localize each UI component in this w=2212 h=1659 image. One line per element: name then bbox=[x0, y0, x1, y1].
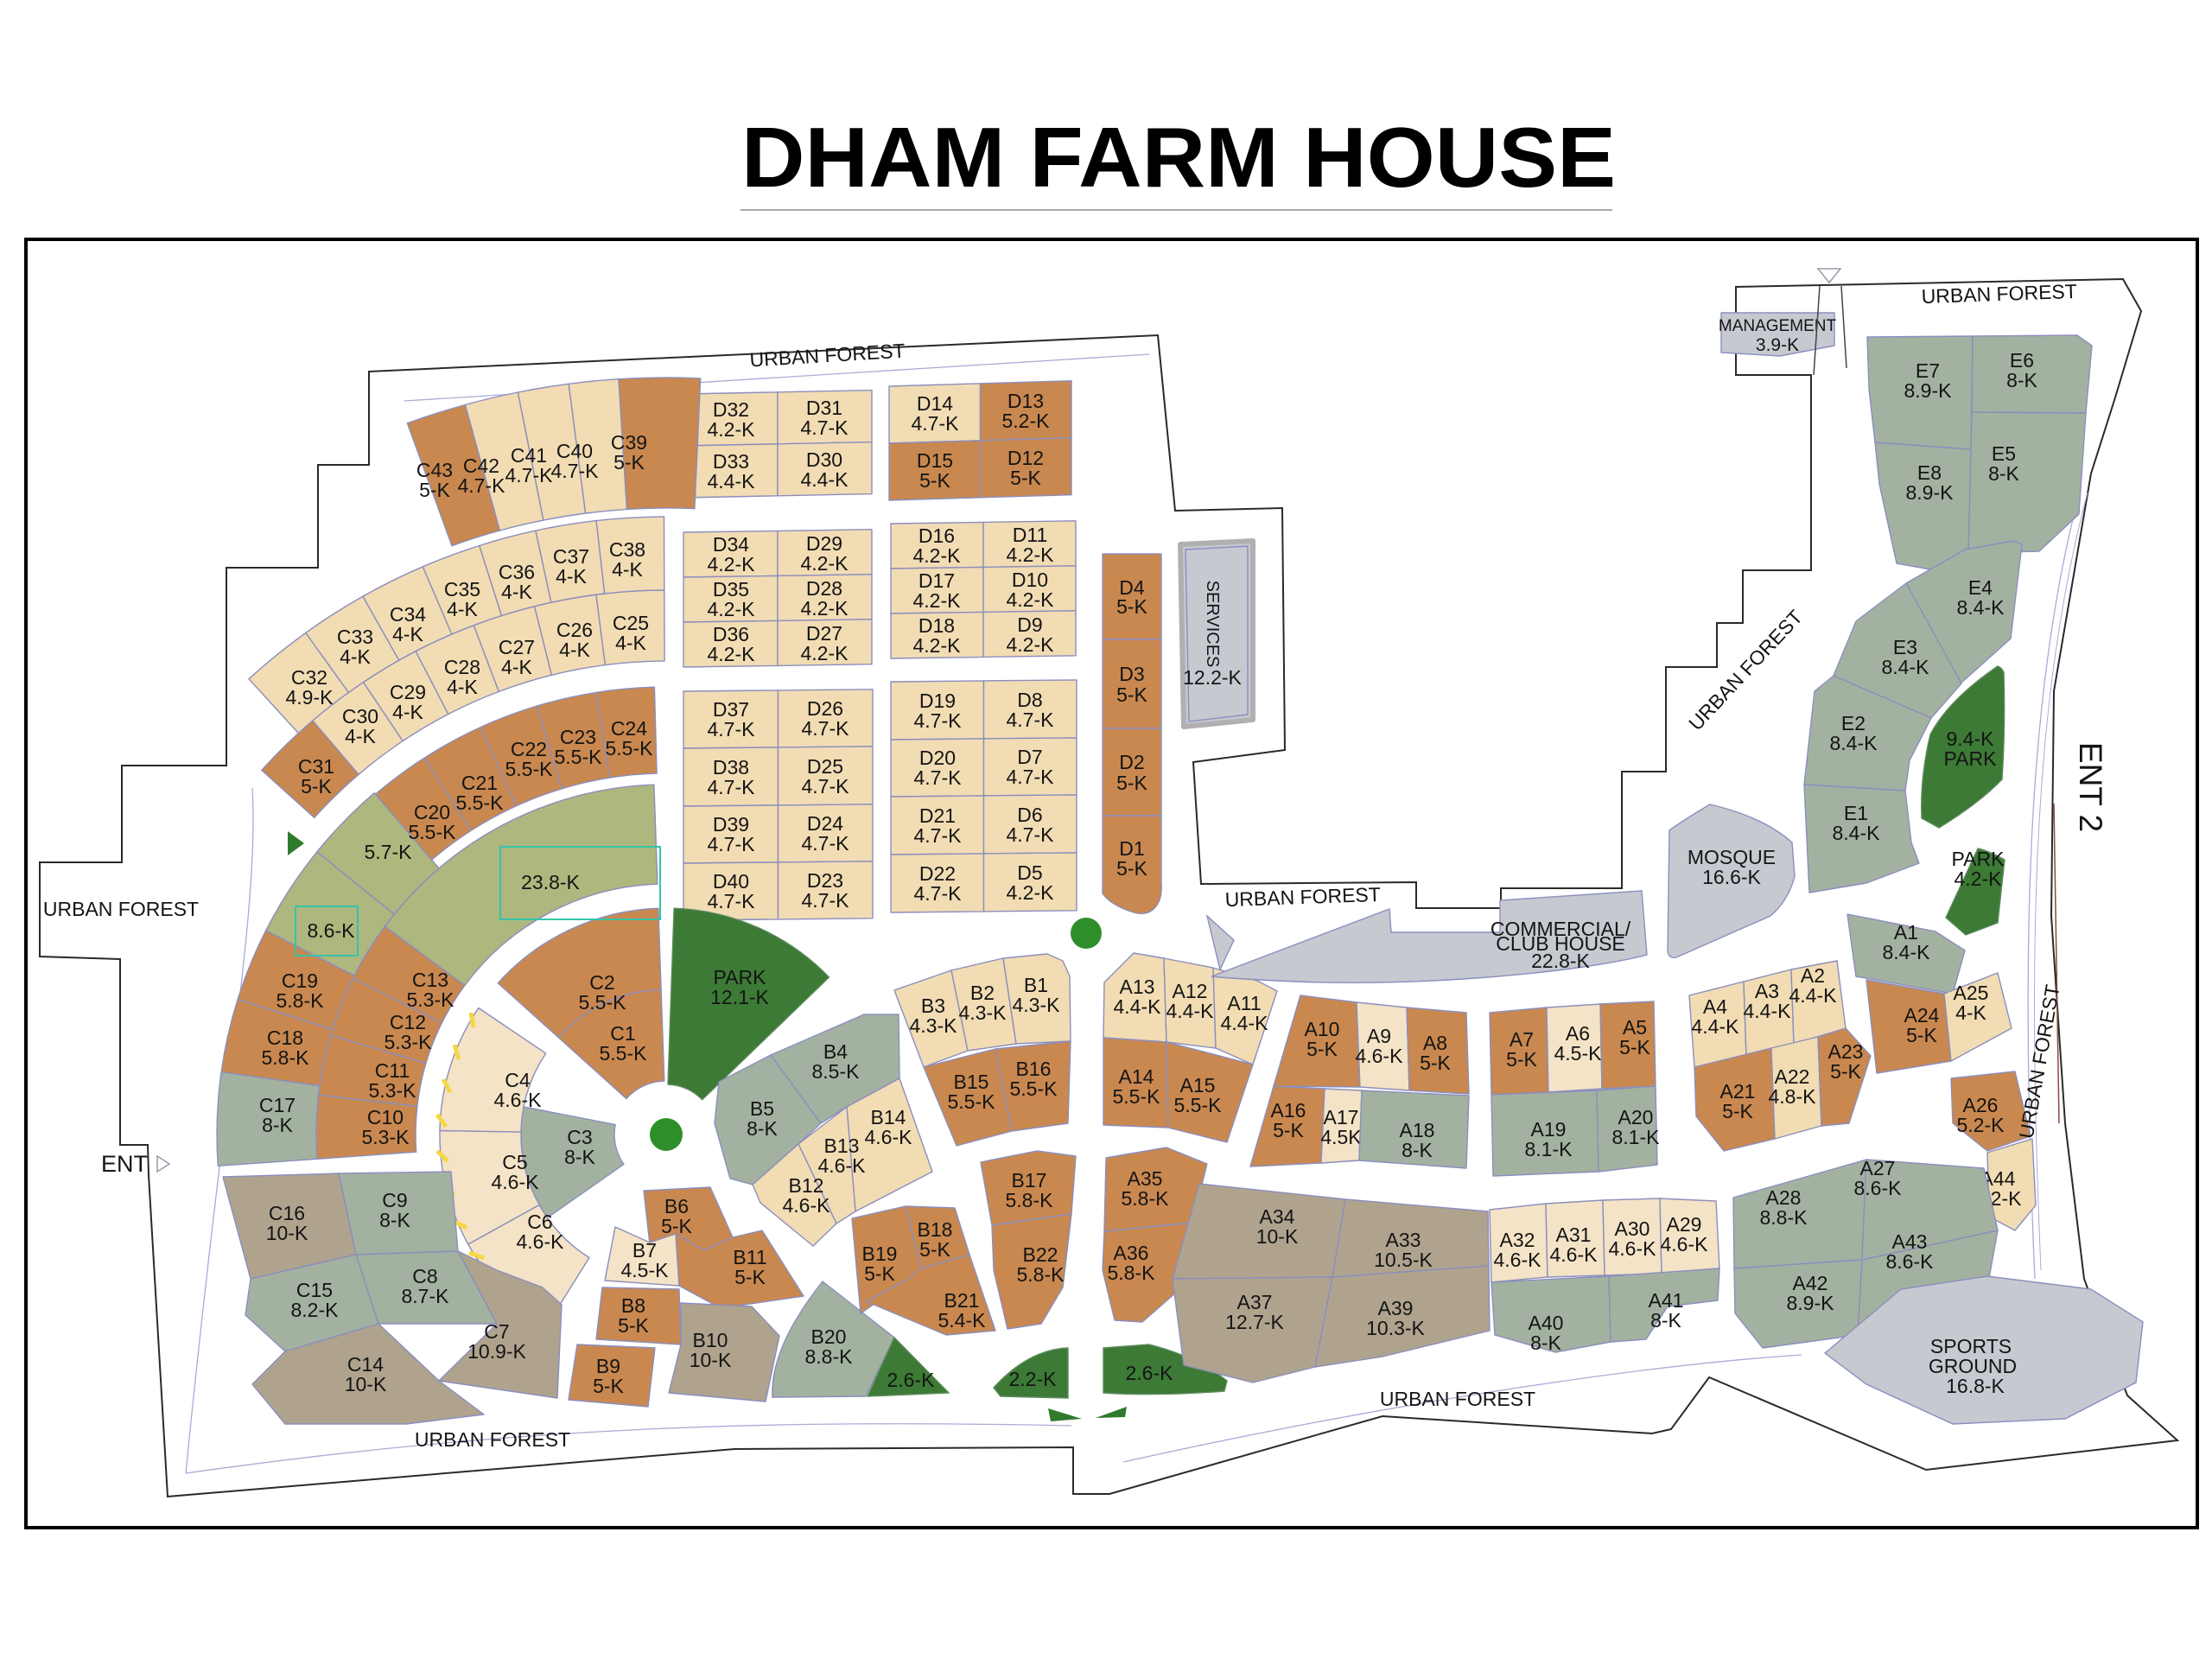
svg-text:8-K: 8-K bbox=[1402, 1139, 1433, 1161]
svg-text:5-K: 5-K bbox=[1116, 857, 1147, 880]
svg-text:5-K: 5-K bbox=[864, 1262, 895, 1285]
svg-text:4.4-K: 4.4-K bbox=[1166, 1000, 1215, 1022]
svg-text:4.2-K: 4.2-K bbox=[1007, 881, 1055, 904]
svg-text:4.7-K: 4.7-K bbox=[914, 766, 963, 789]
svg-text:4.7-K: 4.7-K bbox=[708, 890, 756, 912]
svg-text:4-K: 4-K bbox=[1955, 1001, 1986, 1024]
svg-text:4-K: 4-K bbox=[559, 639, 590, 661]
svg-text:10-K: 10-K bbox=[345, 1373, 387, 1395]
svg-text:URBAN FOREST: URBAN FOREST bbox=[1380, 1388, 1535, 1410]
svg-text:8-K: 8-K bbox=[747, 1117, 778, 1140]
svg-text:4.6-K: 4.6-K bbox=[517, 1230, 565, 1253]
svg-text:4.2-K: 4.2-K bbox=[913, 634, 962, 657]
svg-text:4.4-K: 4.4-K bbox=[1789, 984, 1838, 1007]
svg-text:8.4-K: 8.4-K bbox=[1882, 656, 1930, 678]
svg-text:12.7-K: 12.7-K bbox=[1225, 1311, 1284, 1333]
svg-text:8.5-K: 8.5-K bbox=[812, 1060, 861, 1083]
svg-text:5.5-K: 5.5-K bbox=[1010, 1077, 1058, 1100]
svg-text:4.4-K: 4.4-K bbox=[801, 468, 849, 491]
svg-text:4-K: 4-K bbox=[447, 676, 478, 698]
svg-text:4.5-K: 4.5-K bbox=[621, 1259, 670, 1281]
svg-text:4.6-K: 4.6-K bbox=[1494, 1249, 1542, 1271]
svg-text:8.8-K: 8.8-K bbox=[805, 1345, 854, 1368]
svg-text:4.6-K: 4.6-K bbox=[783, 1194, 831, 1217]
svg-text:4.4-K: 4.4-K bbox=[708, 470, 756, 493]
svg-text:5.8-K: 5.8-K bbox=[1006, 1189, 1054, 1211]
svg-text:5-K: 5-K bbox=[419, 479, 450, 501]
svg-text:4.5K: 4.5K bbox=[1320, 1126, 1362, 1148]
svg-text:8.4-K: 8.4-K bbox=[1833, 822, 1881, 844]
svg-text:5-K: 5-K bbox=[1306, 1038, 1338, 1060]
svg-text:5.5-K: 5.5-K bbox=[579, 991, 627, 1014]
svg-text:4.4-K: 4.4-K bbox=[1114, 995, 1162, 1018]
svg-text:DHAM FARM HOUSE: DHAM FARM HOUSE bbox=[741, 110, 1616, 205]
svg-text:4.2-K: 4.2-K bbox=[913, 544, 962, 567]
svg-text:4.7-K: 4.7-K bbox=[708, 776, 756, 798]
svg-text:4.6-K: 4.6-K bbox=[1609, 1237, 1657, 1260]
svg-text:5.5-K: 5.5-K bbox=[409, 821, 457, 843]
svg-text:5.5-K: 5.5-K bbox=[606, 737, 654, 760]
svg-text:4.2-K: 4.2-K bbox=[801, 597, 849, 620]
svg-text:D3: D3 bbox=[1119, 663, 1144, 685]
svg-text:5-K: 5-K bbox=[1906, 1024, 1937, 1046]
svg-text:4.4-K: 4.4-K bbox=[1744, 1000, 1792, 1022]
svg-text:4.7-K: 4.7-K bbox=[708, 718, 756, 741]
svg-text:3.9-K: 3.9-K bbox=[1756, 335, 1799, 355]
svg-text:22.8-K: 22.8-K bbox=[1531, 950, 1590, 972]
svg-text:5.3-K: 5.3-K bbox=[385, 1031, 433, 1053]
svg-text:5.5-K: 5.5-K bbox=[505, 758, 554, 780]
svg-text:12.2-K: 12.2-K bbox=[1183, 666, 1242, 689]
svg-text:5.7-K: 5.7-K bbox=[365, 841, 413, 863]
svg-text:8.1-K: 8.1-K bbox=[1612, 1126, 1661, 1148]
svg-text:8.4-K: 8.4-K bbox=[1830, 732, 1878, 754]
svg-text:ENT 2: ENT 2 bbox=[2073, 742, 2108, 832]
svg-text:8-K: 8-K bbox=[564, 1146, 595, 1168]
svg-text:4-K: 4-K bbox=[612, 558, 643, 581]
svg-text:4.7-K: 4.7-K bbox=[912, 412, 960, 435]
svg-text:5-K: 5-K bbox=[1116, 772, 1147, 794]
svg-text:4-K: 4-K bbox=[501, 656, 532, 678]
svg-text:5.2-K: 5.2-K bbox=[1957, 1114, 2005, 1136]
svg-text:SERVICES: SERVICES bbox=[1203, 581, 1222, 668]
svg-text:10-K: 10-K bbox=[690, 1349, 732, 1371]
svg-text:4.7-K: 4.7-K bbox=[1007, 766, 1055, 788]
svg-text:4.7-K: 4.7-K bbox=[1007, 709, 1055, 731]
svg-text:4.7-K: 4.7-K bbox=[551, 460, 600, 482]
svg-text:4.2-K: 4.2-K bbox=[1955, 868, 2003, 890]
svg-text:8-K: 8-K bbox=[1650, 1309, 1681, 1332]
svg-text:4.7-K: 4.7-K bbox=[914, 882, 963, 905]
svg-text:5-K: 5-K bbox=[618, 1314, 649, 1337]
svg-text:4.4-K: 4.4-K bbox=[1221, 1012, 1269, 1034]
svg-text:8.9-K: 8.9-K bbox=[1787, 1292, 1835, 1314]
svg-text:4.7-K: 4.7-K bbox=[802, 832, 850, 855]
svg-text:5-K: 5-K bbox=[1722, 1100, 1753, 1122]
svg-text:5.8-K: 5.8-K bbox=[276, 989, 325, 1012]
svg-text:5-K: 5-K bbox=[734, 1266, 766, 1288]
svg-text:4.7-K: 4.7-K bbox=[1007, 823, 1055, 846]
svg-text:5-K: 5-K bbox=[301, 775, 332, 798]
svg-text:MANAGEMENT: MANAGEMENT bbox=[1719, 317, 1837, 335]
svg-text:4-K: 4-K bbox=[447, 598, 478, 620]
svg-text:4.6-K: 4.6-K bbox=[1550, 1243, 1599, 1266]
svg-text:8-K: 8-K bbox=[2006, 369, 2037, 391]
svg-text:4.7-K: 4.7-K bbox=[914, 709, 963, 732]
svg-text:8.9-K: 8.9-K bbox=[1904, 379, 1953, 402]
svg-text:5.3-K: 5.3-K bbox=[369, 1079, 417, 1102]
svg-text:5.5-K: 5.5-K bbox=[555, 746, 603, 768]
svg-text:PARK: PARK bbox=[1944, 747, 1998, 770]
svg-text:16.6-K: 16.6-K bbox=[1702, 866, 1761, 888]
svg-text:8-K: 8-K bbox=[262, 1114, 293, 1136]
svg-text:4.2-K: 4.2-K bbox=[708, 418, 756, 441]
svg-text:4.6-K: 4.6-K bbox=[1661, 1233, 1709, 1255]
svg-text:2.6-K: 2.6-K bbox=[887, 1369, 936, 1391]
svg-text:5.5-K: 5.5-K bbox=[456, 791, 505, 814]
svg-text:5.5-K: 5.5-K bbox=[1113, 1085, 1161, 1108]
svg-text:4.5-K: 4.5-K bbox=[1554, 1042, 1603, 1065]
svg-text:5-K: 5-K bbox=[1116, 595, 1147, 618]
svg-text:8.1-K: 8.1-K bbox=[1525, 1138, 1573, 1160]
svg-text:23.8-K: 23.8-K bbox=[521, 871, 580, 893]
svg-text:4.2-K: 4.2-K bbox=[708, 643, 756, 665]
svg-text:5.2-K: 5.2-K bbox=[1002, 410, 1051, 432]
svg-text:URBAN FOREST: URBAN FOREST bbox=[415, 1428, 570, 1451]
svg-text:4.3-K: 4.3-K bbox=[910, 1014, 958, 1037]
svg-text:4.6-K: 4.6-K bbox=[865, 1126, 913, 1148]
svg-text:10.3-K: 10.3-K bbox=[1366, 1317, 1425, 1339]
svg-text:ENT: ENT bbox=[101, 1151, 148, 1177]
svg-text:4.8-K: 4.8-K bbox=[1769, 1085, 1817, 1108]
svg-text:8.6-K: 8.6-K bbox=[308, 919, 356, 942]
svg-text:8-K: 8-K bbox=[1988, 462, 2019, 485]
svg-text:4.3-K: 4.3-K bbox=[959, 1001, 1007, 1024]
svg-text:10.5-K: 10.5-K bbox=[1374, 1249, 1433, 1271]
svg-text:10-K: 10-K bbox=[1256, 1225, 1299, 1248]
svg-text:D2: D2 bbox=[1119, 751, 1144, 773]
svg-text:4.2-K: 4.2-K bbox=[1007, 633, 1055, 656]
svg-text:4.2-K: 4.2-K bbox=[1007, 543, 1055, 566]
svg-text:4.7-K: 4.7-K bbox=[708, 833, 756, 855]
svg-text:8.6-K: 8.6-K bbox=[1886, 1250, 1935, 1273]
svg-text:8-K: 8-K bbox=[379, 1209, 410, 1231]
svg-text:5-K: 5-K bbox=[1010, 467, 1041, 489]
svg-text:8.9-K: 8.9-K bbox=[1906, 481, 1955, 504]
svg-text:5.5-K: 5.5-K bbox=[948, 1090, 996, 1113]
svg-text:5.8-K: 5.8-K bbox=[262, 1046, 310, 1069]
svg-text:4-K: 4-K bbox=[501, 581, 532, 603]
svg-text:5-K: 5-K bbox=[919, 469, 950, 492]
svg-text:4.2-K: 4.2-K bbox=[708, 598, 756, 620]
svg-text:5-K: 5-K bbox=[1506, 1048, 1537, 1071]
svg-text:4.7-K: 4.7-K bbox=[801, 416, 849, 439]
svg-text:5-K: 5-K bbox=[1420, 1052, 1451, 1074]
svg-text:8.2-K: 8.2-K bbox=[291, 1299, 340, 1321]
svg-text:5.8-K: 5.8-K bbox=[1017, 1263, 1065, 1286]
svg-text:5-K: 5-K bbox=[1116, 683, 1147, 706]
svg-text:4.6-K: 4.6-K bbox=[494, 1089, 543, 1111]
svg-text:4.7-K: 4.7-K bbox=[802, 889, 850, 912]
svg-text:4.2-K: 4.2-K bbox=[801, 552, 849, 575]
svg-text:8.8-K: 8.8-K bbox=[1760, 1206, 1808, 1229]
svg-text:4-K: 4-K bbox=[340, 645, 371, 668]
svg-text:4-K: 4-K bbox=[556, 565, 587, 588]
svg-text:16.8-K: 16.8-K bbox=[1946, 1375, 2005, 1397]
svg-text:4.7-K: 4.7-K bbox=[458, 474, 506, 497]
svg-text:5-K: 5-K bbox=[1619, 1036, 1650, 1058]
svg-text:5-K: 5-K bbox=[593, 1375, 624, 1397]
svg-text:5.5-K: 5.5-K bbox=[600, 1042, 648, 1065]
svg-text:4.2-K: 4.2-K bbox=[708, 553, 756, 575]
svg-text:4.7-K: 4.7-K bbox=[914, 824, 963, 847]
svg-text:5.8-K: 5.8-K bbox=[1122, 1187, 1170, 1210]
svg-text:5-K: 5-K bbox=[1830, 1060, 1861, 1083]
svg-text:8.6-K: 8.6-K bbox=[1854, 1177, 1903, 1199]
svg-text:4.4-K: 4.4-K bbox=[1692, 1015, 1740, 1038]
svg-text:5-K: 5-K bbox=[1273, 1119, 1304, 1141]
svg-text:2.6-K: 2.6-K bbox=[1126, 1362, 1174, 1384]
svg-text:8-K: 8-K bbox=[1530, 1332, 1561, 1354]
svg-text:4.7-K: 4.7-K bbox=[505, 464, 554, 486]
svg-text:5.3-K: 5.3-K bbox=[362, 1126, 410, 1148]
svg-text:4-K: 4-K bbox=[392, 701, 423, 723]
svg-text:4.2-K: 4.2-K bbox=[801, 642, 849, 664]
svg-text:5.3-K: 5.3-K bbox=[407, 988, 455, 1011]
svg-text:4-K: 4-K bbox=[392, 623, 423, 645]
svg-text:5-K: 5-K bbox=[613, 451, 645, 474]
svg-text:4.6-K: 4.6-K bbox=[1356, 1045, 1404, 1067]
svg-text:4.7-K: 4.7-K bbox=[802, 717, 850, 740]
svg-text:8.4-K: 8.4-K bbox=[1957, 596, 2005, 619]
svg-text:2.2-K: 2.2-K bbox=[1009, 1368, 1058, 1390]
svg-text:5.8-K: 5.8-K bbox=[1108, 1262, 1156, 1284]
svg-text:4-K: 4-K bbox=[615, 632, 646, 654]
svg-text:4.2-K: 4.2-K bbox=[1007, 588, 1055, 611]
svg-text:4.6-K: 4.6-K bbox=[492, 1171, 540, 1193]
svg-text:10.9-K: 10.9-K bbox=[467, 1340, 526, 1363]
svg-text:5.4-K: 5.4-K bbox=[938, 1309, 987, 1332]
svg-text:4.3-K: 4.3-K bbox=[1013, 994, 1061, 1016]
svg-text:4-K: 4-K bbox=[345, 725, 376, 747]
svg-text:5.5-K: 5.5-K bbox=[1174, 1094, 1223, 1116]
svg-text:4.7-K: 4.7-K bbox=[802, 775, 850, 798]
svg-text:5-K: 5-K bbox=[919, 1238, 950, 1261]
svg-text:4.9-K: 4.9-K bbox=[286, 686, 334, 709]
svg-text:4.2-K: 4.2-K bbox=[913, 589, 962, 612]
svg-text:4.6-K: 4.6-K bbox=[818, 1154, 867, 1177]
svg-text:8.7-K: 8.7-K bbox=[402, 1285, 450, 1307]
svg-text:10-K: 10-K bbox=[266, 1222, 308, 1244]
svg-text:8.4-K: 8.4-K bbox=[1883, 941, 1931, 963]
svg-text:12.1-K: 12.1-K bbox=[710, 986, 769, 1008]
svg-text:URBAN FOREST: URBAN FOREST bbox=[43, 898, 199, 920]
